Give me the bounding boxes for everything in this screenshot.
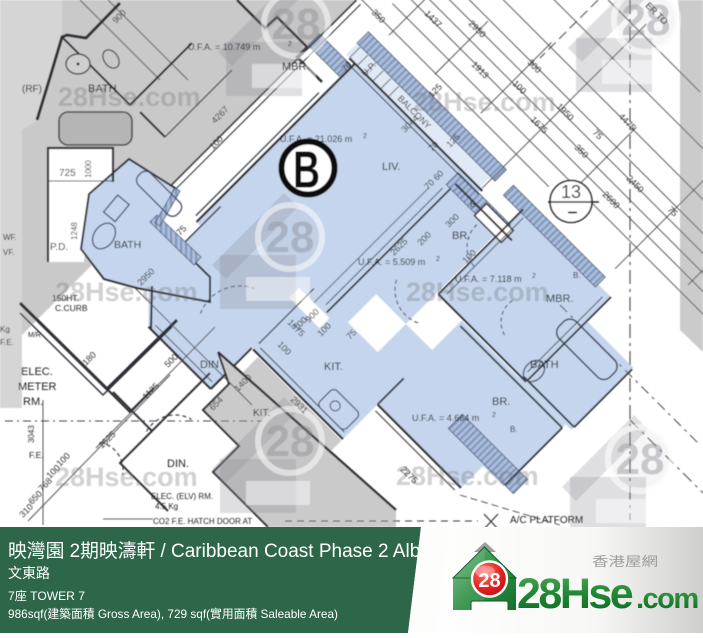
svg-text:Kg: Kg bbox=[0, 325, 10, 334]
svg-text:2: 2 bbox=[288, 41, 292, 48]
svg-text:BATH: BATH bbox=[114, 239, 141, 251]
svg-text:RM.: RM. bbox=[23, 396, 43, 408]
svg-text:MBR.: MBR. bbox=[282, 61, 310, 73]
svg-text:香港屋網: 香港屋網 bbox=[592, 554, 658, 569]
svg-text:28: 28 bbox=[478, 570, 500, 592]
svg-text:ELEC. (ELV) RM.: ELEC. (ELV) RM. bbox=[151, 492, 213, 501]
svg-text:2: 2 bbox=[532, 273, 536, 280]
svg-text:28Hse.com: 28Hse.com bbox=[58, 82, 201, 112]
svg-text:P.D.: P.D. bbox=[50, 242, 68, 253]
svg-text:2: 2 bbox=[363, 133, 367, 140]
svg-text:B.: B. bbox=[470, 200, 478, 209]
svg-text:3043: 3043 bbox=[27, 425, 36, 443]
svg-text:B: B bbox=[293, 140, 320, 199]
svg-text:VF.: VF. bbox=[3, 248, 15, 257]
svg-text:METER: METER bbox=[18, 381, 57, 393]
svg-text:986sqf(建築面積 Gross Area), 729 s: 986sqf(建築面積 Gross Area), 729 sqf(實用面積 Sa… bbox=[8, 606, 338, 621]
svg-text:DIN: DIN bbox=[200, 359, 219, 371]
svg-text:BATH: BATH bbox=[530, 359, 559, 371]
svg-text:WF.: WF. bbox=[3, 233, 17, 242]
svg-text:文東路: 文東路 bbox=[8, 565, 50, 581]
svg-text:.com: .com bbox=[636, 583, 698, 615]
svg-text:A/C PLATFORM: A/C PLATFORM bbox=[510, 515, 583, 526]
svg-text:2: 2 bbox=[436, 256, 440, 263]
svg-text:KIT.: KIT. bbox=[324, 361, 343, 373]
svg-text:B.: B. bbox=[573, 271, 581, 280]
svg-text:C.CURB: C.CURB bbox=[55, 303, 88, 313]
svg-text:28Hse: 28Hse bbox=[517, 570, 633, 618]
svg-text:DIN.: DIN. bbox=[167, 458, 189, 470]
svg-text:4.5 Kg: 4.5 Kg bbox=[155, 502, 178, 511]
svg-text:F.E.: F.E. bbox=[0, 338, 14, 347]
svg-text:U.F.A. = 5.509 m: U.F.A. = 5.509 m bbox=[358, 257, 425, 267]
svg-text:1000: 1000 bbox=[84, 160, 93, 178]
svg-text:B.: B. bbox=[510, 425, 518, 434]
svg-text:ELEC.: ELEC. bbox=[21, 366, 53, 378]
svg-text:2: 2 bbox=[492, 412, 496, 419]
svg-text:1248: 1248 bbox=[70, 222, 79, 240]
svg-text:BR.: BR. bbox=[452, 230, 470, 242]
svg-text:U.F.A. = 10.749 m: U.F.A. = 10.749 m bbox=[188, 42, 260, 52]
svg-text:BATH: BATH bbox=[88, 83, 117, 95]
svg-text:CO2 F.E. HATCH DOOR AT: CO2 F.E. HATCH DOOR AT bbox=[153, 517, 252, 526]
svg-text:(RF): (RF) bbox=[22, 84, 42, 95]
svg-text:M/R: M/R bbox=[28, 332, 41, 339]
svg-text:U.F.A. = 7.118 m: U.F.A. = 7.118 m bbox=[455, 274, 522, 284]
svg-text:7座 TOWER 7: 7座 TOWER 7 bbox=[8, 588, 85, 603]
svg-text:150HT.: 150HT. bbox=[52, 293, 79, 303]
svg-text:MBR.: MBR. bbox=[546, 293, 574, 305]
svg-text:F.E.: F.E. bbox=[29, 450, 44, 460]
svg-text:725: 725 bbox=[59, 168, 76, 179]
svg-text:U.F.A. = 4.664 m: U.F.A. = 4.664 m bbox=[412, 413, 479, 423]
svg-text:KIT.: KIT. bbox=[253, 408, 270, 419]
svg-text:BR.: BR. bbox=[492, 396, 510, 408]
svg-text:13: 13 bbox=[561, 182, 581, 202]
svg-text:LIV.: LIV. bbox=[382, 161, 401, 173]
